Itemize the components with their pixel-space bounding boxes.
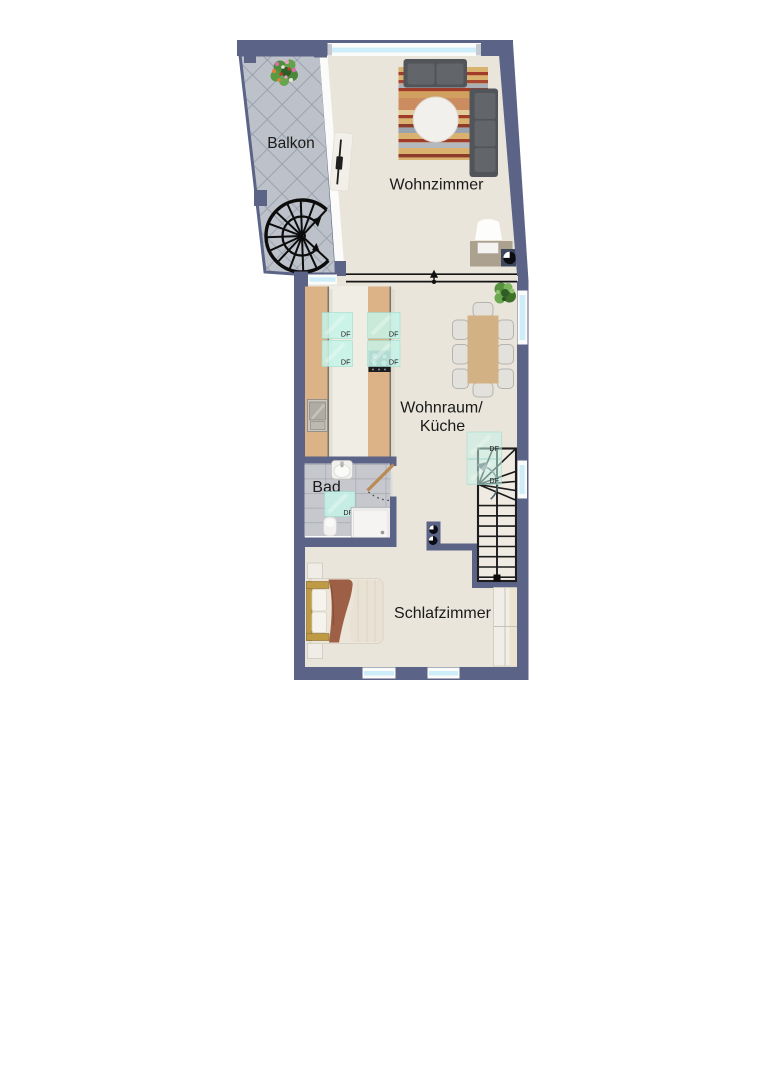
svg-text:DF: DF	[341, 358, 351, 367]
svg-text:DF: DF	[489, 444, 499, 453]
svg-text:DF: DF	[489, 476, 499, 485]
svg-text:DF: DF	[341, 330, 351, 339]
svg-text:Wohnzimmer: Wohnzimmer	[390, 177, 485, 194]
svg-text:Küche: Küche	[420, 418, 465, 435]
svg-text:DF: DF	[389, 330, 399, 339]
svg-text:DF: DF	[389, 358, 399, 367]
svg-text:Schlafzimmer: Schlafzimmer	[394, 605, 492, 622]
svg-text:Balkon: Balkon	[267, 135, 314, 152]
svg-text:Wohnraum/: Wohnraum/	[400, 400, 483, 417]
